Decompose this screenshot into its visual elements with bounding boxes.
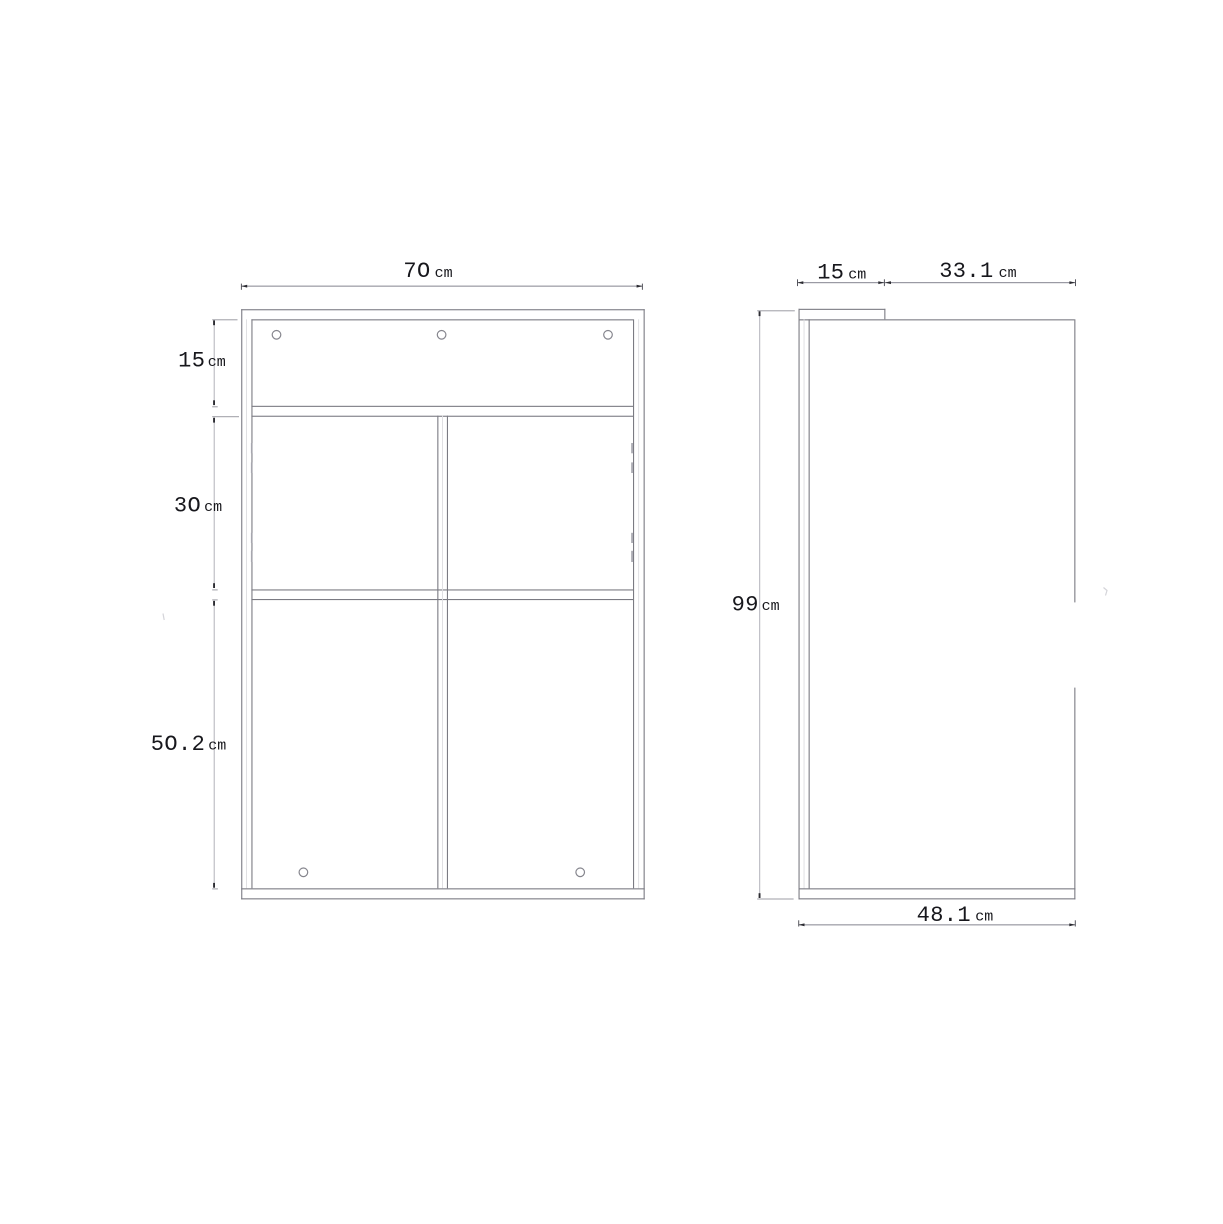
svg-text:7O: 7O	[403, 259, 430, 284]
svg-text:cm: cm	[999, 265, 1017, 282]
svg-text:cm: cm	[208, 737, 226, 754]
svg-text:cm: cm	[208, 354, 226, 371]
svg-text:48.1: 48.1	[917, 903, 971, 928]
svg-text:cm: cm	[435, 265, 453, 282]
svg-text:15: 15	[178, 348, 205, 373]
svg-text:cm: cm	[762, 598, 780, 615]
svg-text:33.1: 33.1	[939, 259, 993, 284]
svg-text:99: 99	[732, 593, 759, 618]
svg-text:5O.2: 5O.2	[151, 732, 205, 757]
svg-text:3O: 3O	[174, 493, 201, 518]
svg-text:cm: cm	[204, 499, 222, 516]
svg-text:cm: cm	[975, 909, 993, 926]
svg-text:cm: cm	[848, 266, 866, 283]
svg-text:15: 15	[817, 260, 844, 285]
